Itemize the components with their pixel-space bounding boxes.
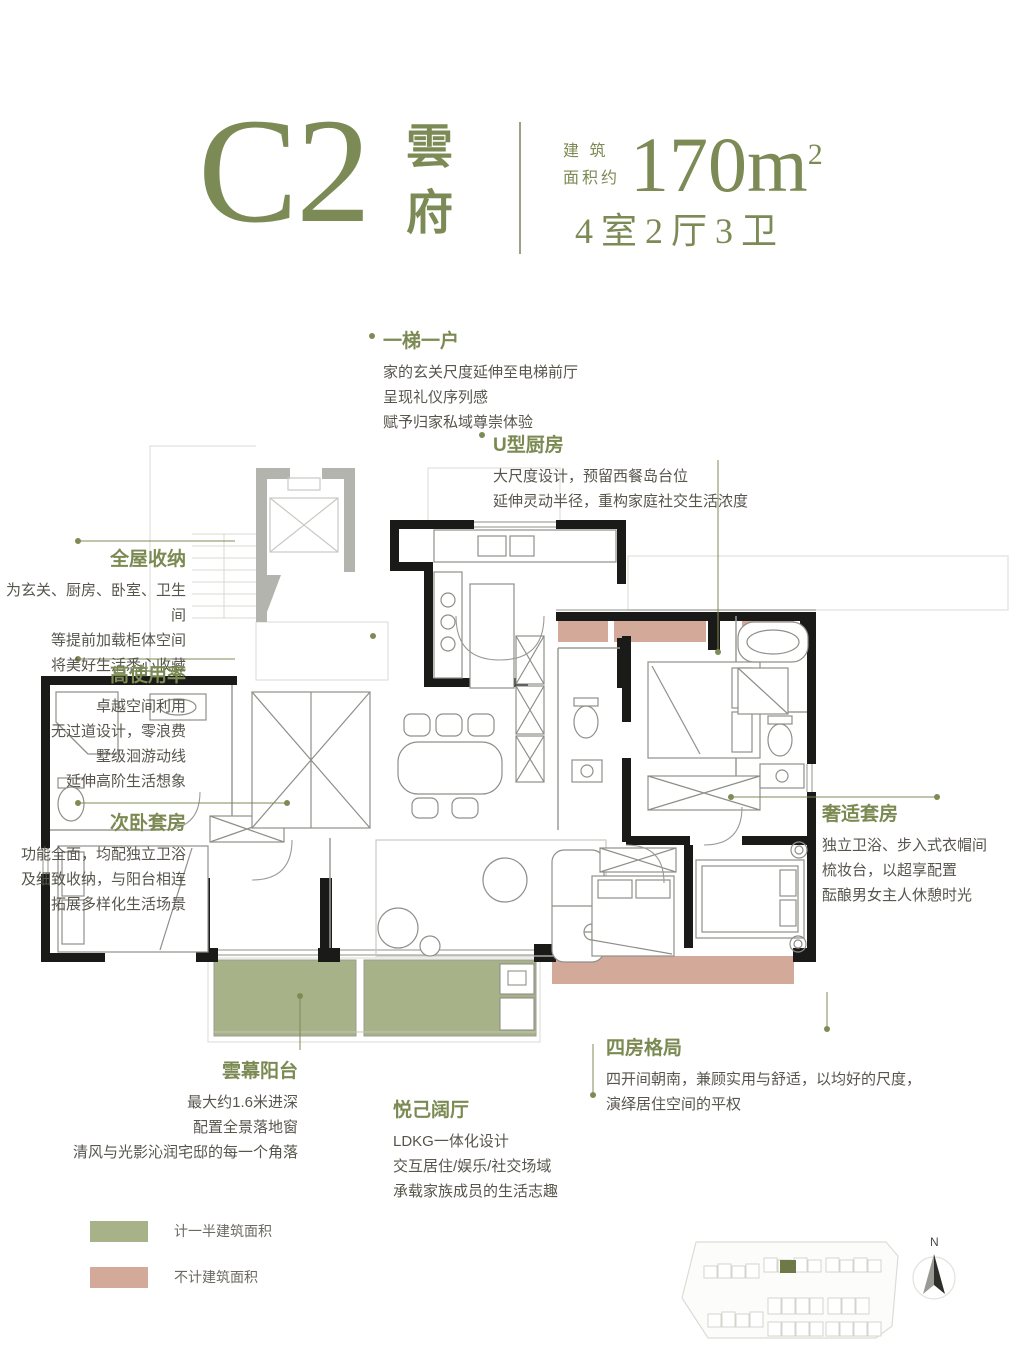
legend-label: 不计建筑面积 <box>174 1267 258 1287</box>
middle-bedroom <box>592 848 676 956</box>
annotation-title: 奢适套房 <box>822 799 987 826</box>
stairs <box>192 534 388 680</box>
annotation-title: 高使用率 <box>0 660 186 687</box>
room-count: 4室2厅3卫 <box>575 202 785 254</box>
elevator-shaft <box>270 478 338 552</box>
annotation-u-kitchen: U型厨房 大尺度设计，预留西餐岛台位 延伸灵动半径，重构家庭社交生活浓度 <box>493 430 748 514</box>
area-label: 建 筑面积约 <box>563 138 620 192</box>
balconies-green <box>214 960 536 1036</box>
annotation-title: 次卧套房 <box>0 808 186 835</box>
annotation-title: 一梯一户 <box>383 326 578 353</box>
guest-bedroom <box>572 662 760 810</box>
annotation-pleasing-living-room: 悦己阔厅 LDKG一体化设计 交互居住/娱乐/社交场域 承载家族成员的生活志趣 <box>393 1095 558 1204</box>
north-label: N <box>930 1235 939 1249</box>
kitchen-island <box>470 584 514 688</box>
storage-cabinets <box>516 636 544 782</box>
elevator-core <box>192 468 388 680</box>
header-divider <box>519 122 521 254</box>
legend-item-not-counted: 不计建筑面积 <box>90 1266 272 1288</box>
area-row: 建 筑面积约 170m2 <box>563 126 823 204</box>
legend-item-half-counted: 计一半建筑面积 <box>90 1220 272 1242</box>
legend: 计一半建筑面积 不计建筑面积 <box>90 1220 272 1312</box>
unit-code: C2 <box>198 96 369 246</box>
compass-east-half <box>934 1254 945 1294</box>
living-set <box>376 840 606 962</box>
dining-set <box>398 714 502 818</box>
core-walls <box>256 468 355 622</box>
legend-swatch-green <box>90 1221 148 1242</box>
annotation-title: 四房格局 <box>606 1033 921 1060</box>
area-sup: 2 <box>808 138 823 171</box>
compass-west-half <box>923 1254 934 1294</box>
north-compass: N <box>913 1235 955 1299</box>
master-bathroom <box>738 622 808 788</box>
legend-swatch-pink <box>90 1267 148 1288</box>
site-plan: N <box>668 1226 1010 1364</box>
legend-label: 计一半建筑面积 <box>174 1221 272 1241</box>
unit-name: 雲府 <box>406 116 458 248</box>
foyer-closet <box>252 692 370 828</box>
annotation-one-elevator-one-home: 一梯一户 家的玄关尺度延伸至电梯前厅 呈现礼仪序列感 赋予归家私域尊崇体验 <box>383 326 578 435</box>
annotation-cloud-balcony: 雲幕阳台 最大约1.6米进深 配置全景落地窗 清风与光影沁润宅邸的每一个角落 <box>55 1056 298 1165</box>
annotation-title: 全屋收纳 <box>0 544 186 571</box>
area-value: 170m2 <box>630 126 823 204</box>
annotation-title: U型厨房 <box>493 430 748 457</box>
site-highlighted-building <box>780 1260 796 1273</box>
annotation-title: 悦己阔厅 <box>393 1095 558 1122</box>
master-bedroom <box>696 842 807 952</box>
annotation-high-efficiency: 高使用率 卓越空间利用 无过道设计，零浪费 墅级洄游动线 延伸高阶生活想象 <box>0 660 186 794</box>
floorplan-poster: C2 雲府 建 筑面积约 170m2 4室2厅3卫 <box>0 0 1013 1369</box>
annotation-title: 雲幕阳台 <box>55 1056 298 1083</box>
annotation-four-room-layout: 四房格局 四开间朝南，兼顾实用与舒适，以均好的尺度， 演绎居住空间的平权 <box>606 1033 921 1117</box>
annotation-second-bedroom-suite: 次卧套房 功能全面，均配独立卫浴 及细致收纳，与阳台相连 拓展多样化生活场景 <box>0 808 186 917</box>
annotation-luxury-master-suite: 奢适套房 独立卫浴、步入式衣帽间 梳妆台，以超享配置 酝酿男女主人休憩时光 <box>822 799 987 908</box>
plan-header: C2 雲府 建 筑面积约 170m2 4室2厅3卫 <box>0 0 1013 280</box>
annotation-whole-house-storage: 全屋收纳 为玄关、厨房、卧室、卫生间 等提前加载柜体空间 将美好生活悉心收藏 <box>0 544 186 678</box>
